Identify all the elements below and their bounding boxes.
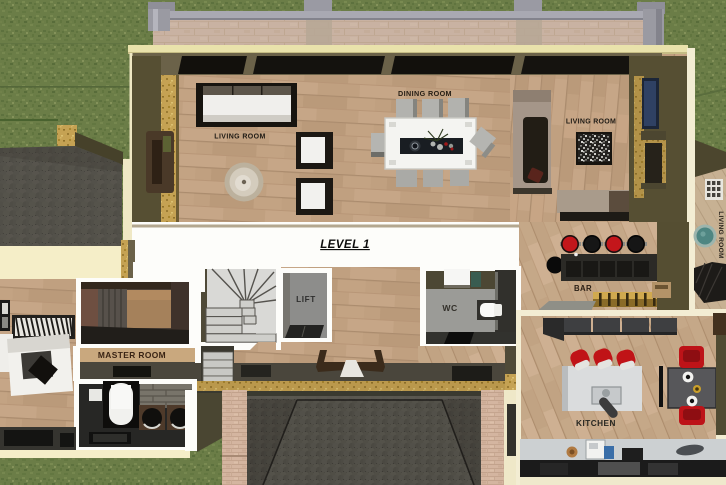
svg-text:KITCHEN: KITCHEN <box>576 419 616 428</box>
svg-text:LIVING ROOM: LIVING ROOM <box>214 134 265 141</box>
svg-text:LIFT: LIFT <box>296 295 316 304</box>
svg-text:LIVING ROOM: LIVING ROOM <box>566 119 616 126</box>
svg-text:WC: WC <box>442 303 457 313</box>
svg-text:BAR: BAR <box>574 284 592 293</box>
svg-text:DINING ROOM: DINING ROOM <box>398 89 452 98</box>
svg-text:LIVING ROOM: LIVING ROOM <box>717 211 724 259</box>
svg-text:MASTER ROOM: MASTER ROOM <box>98 350 166 360</box>
svg-text:LEVEL 1: LEVEL 1 <box>320 238 370 251</box>
